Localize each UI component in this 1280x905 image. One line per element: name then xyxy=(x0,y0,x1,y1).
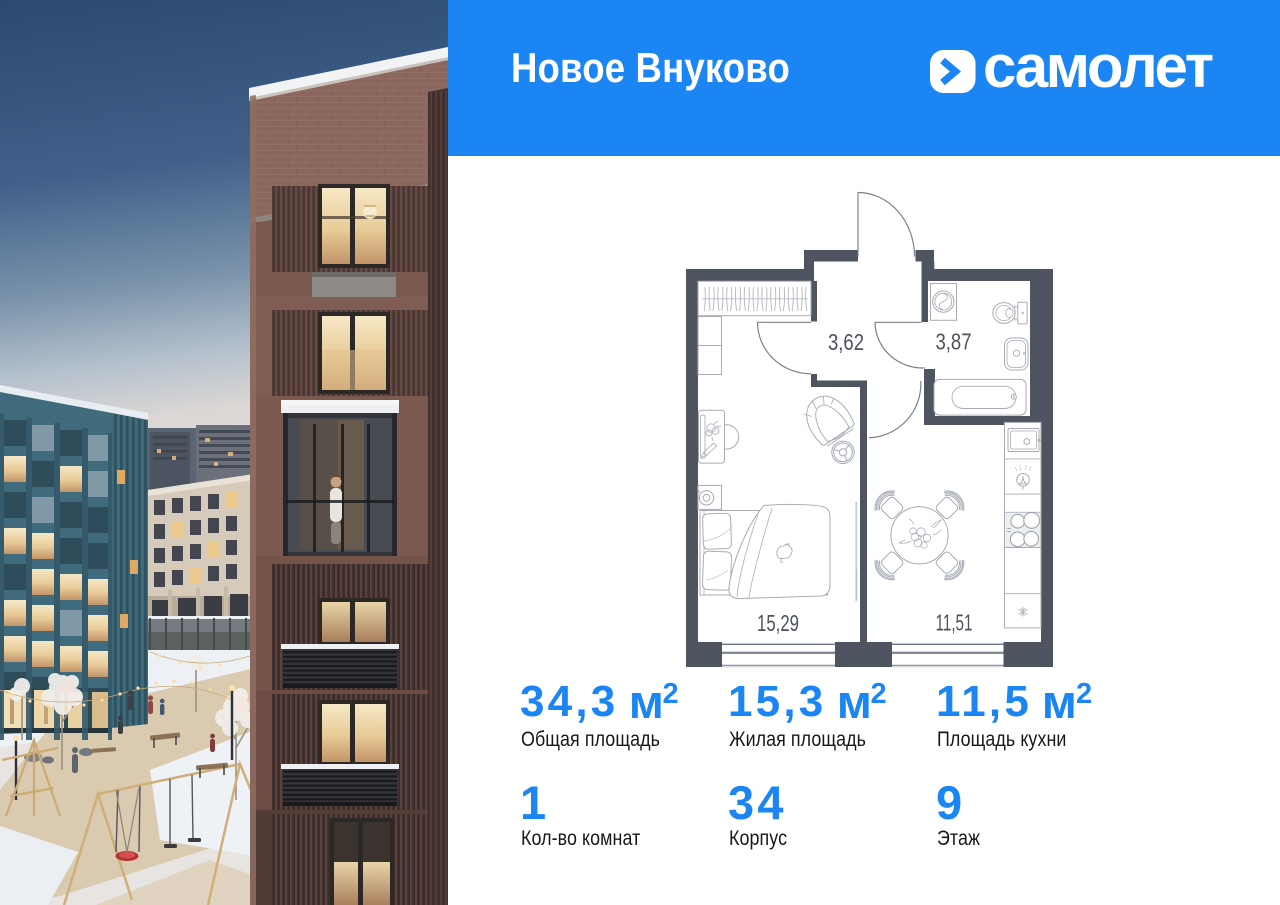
svg-text:15,29: 15,29 xyxy=(757,610,799,636)
svg-text:самолет: самолет xyxy=(983,40,1213,100)
svg-text:3,62: 3,62 xyxy=(828,329,864,355)
svg-text:3,87: 3,87 xyxy=(936,329,972,355)
svg-text:11,51: 11,51 xyxy=(936,610,973,636)
